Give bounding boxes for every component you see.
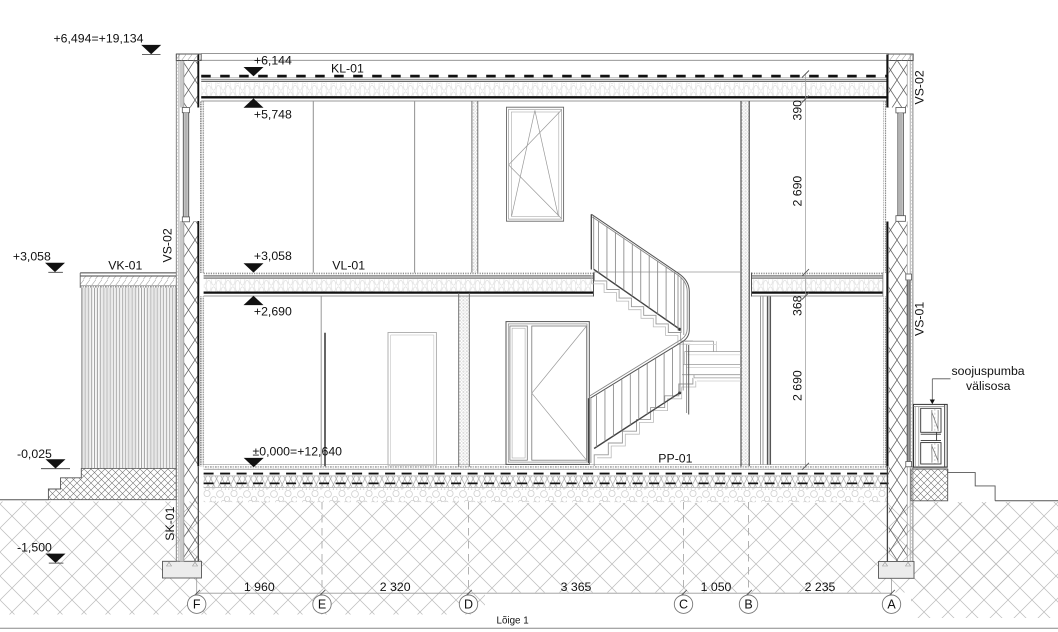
svg-text:2 235: 2 235	[805, 580, 836, 594]
svg-text:PP-01: PP-01	[658, 452, 692, 466]
svg-text:A: A	[887, 598, 896, 612]
svg-text:368: 368	[791, 295, 805, 316]
svg-text:-1,500: -1,500	[17, 540, 52, 554]
svg-text:390: 390	[791, 100, 805, 121]
svg-text:soojuspumba: soojuspumba	[952, 364, 1025, 378]
svg-text:2 320: 2 320	[380, 580, 411, 594]
svg-text:VS-02: VS-02	[161, 228, 175, 262]
svg-text:+5,748: +5,748	[254, 107, 292, 121]
svg-text:VS-02: VS-02	[912, 70, 926, 104]
svg-text:VL-01: VL-01	[332, 258, 365, 272]
svg-text:±0,000=+12,640: ±0,000=+12,640	[253, 445, 343, 459]
svg-text:+2,690: +2,690	[254, 305, 292, 319]
svg-text:+3,058: +3,058	[254, 249, 292, 263]
svg-text:VK-01: VK-01	[108, 258, 142, 272]
svg-text:F: F	[193, 598, 201, 612]
svg-text:-0,025: -0,025	[17, 447, 52, 461]
svg-text:2 690: 2 690	[791, 176, 805, 207]
svg-text:2 690: 2 690	[791, 370, 805, 401]
svg-text:D: D	[464, 598, 473, 612]
svg-text:3 365: 3 365	[561, 580, 592, 594]
svg-text:+6,494=+19,134: +6,494=+19,134	[54, 31, 144, 45]
svg-text:SK-01: SK-01	[163, 506, 177, 540]
svg-text:1 050: 1 050	[701, 580, 732, 594]
svg-text:+6,144: +6,144	[254, 53, 292, 67]
svg-text:KL-01: KL-01	[331, 61, 364, 75]
svg-text:1 960: 1 960	[244, 580, 275, 594]
svg-text:VS-01: VS-01	[912, 302, 926, 336]
svg-text:E: E	[318, 598, 326, 612]
svg-text:välisosa: välisosa	[966, 379, 1011, 393]
svg-text:C: C	[679, 598, 688, 612]
svg-text:Lõige 1: Lõige 1	[497, 616, 529, 627]
svg-text:+3,058: +3,058	[13, 249, 51, 263]
svg-text:B: B	[744, 598, 752, 612]
